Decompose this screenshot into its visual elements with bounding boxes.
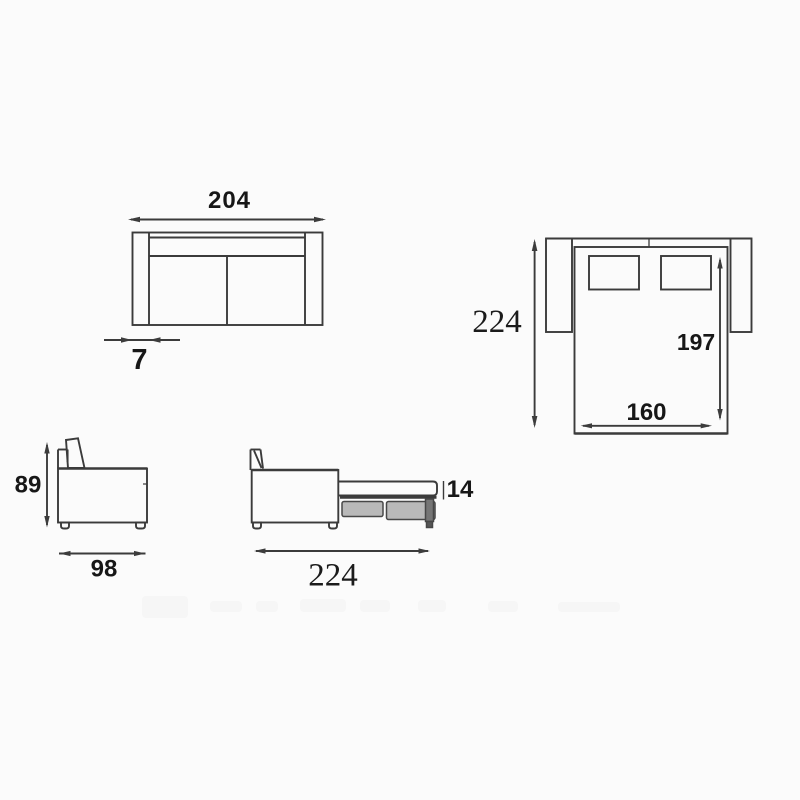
- svg-text:224: 224: [472, 304, 522, 340]
- svg-text:197: 197: [677, 329, 715, 355]
- svg-text:14: 14: [447, 476, 474, 503]
- svg-text:160: 160: [626, 399, 666, 426]
- svg-text:204: 204: [208, 187, 251, 214]
- svg-text:7: 7: [131, 344, 147, 376]
- svg-text:224: 224: [308, 558, 358, 594]
- svg-text:89: 89: [15, 472, 42, 499]
- svg-text:98: 98: [91, 556, 118, 583]
